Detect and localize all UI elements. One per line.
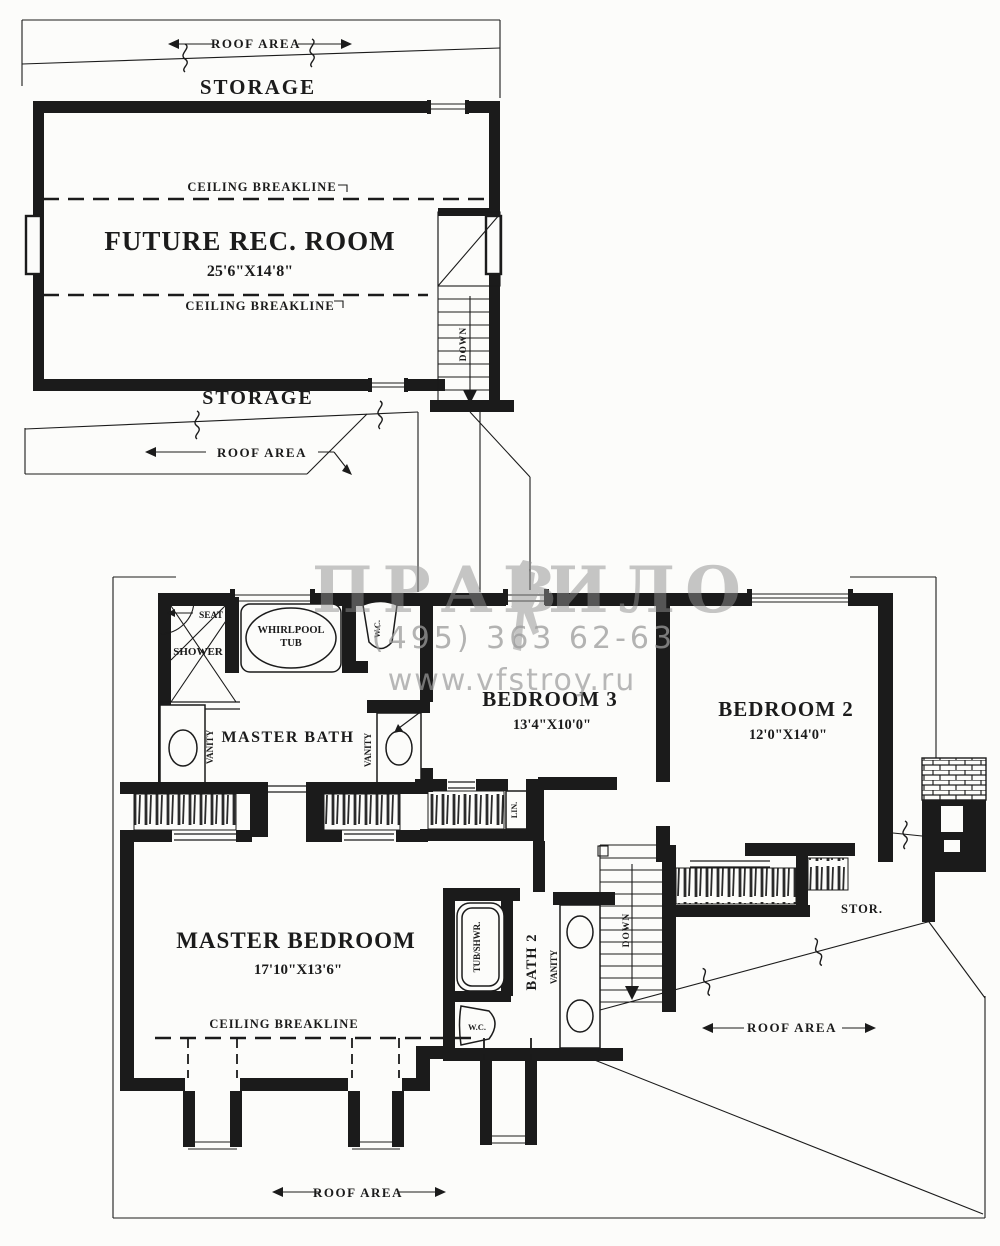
upper-roof-edge-bottom xyxy=(25,412,418,429)
master-bath-label: MASTER BATH xyxy=(221,729,354,746)
bedroom2-closet-door xyxy=(690,861,770,867)
closet-wall xyxy=(236,830,252,842)
master-closet-1 xyxy=(134,794,236,830)
closet-wall xyxy=(250,782,268,837)
upper-breakline-1-text: CEILING BREAKLINE xyxy=(187,180,336,194)
hall-wall-jog xyxy=(533,841,545,892)
dormer-2 xyxy=(348,1091,404,1149)
chimney xyxy=(922,758,986,922)
lower-roof-area-bottom-label: ROOF AREA xyxy=(313,1185,403,1200)
closet-1-door xyxy=(174,834,236,840)
bedroom2-right-wall xyxy=(878,593,893,862)
upper-room-label: FUTURE REC. ROOM xyxy=(104,226,395,256)
vanity-right: VANITY xyxy=(363,713,421,783)
floor-plan-page: ROOF AREA STORAGE CEILING BREAKLINE CEIL… xyxy=(0,0,1000,1246)
seat-label: SEAT xyxy=(199,611,224,621)
tub-alcove-foot xyxy=(342,661,368,673)
bath2-vanity-label: VANITY xyxy=(549,949,559,984)
upper-room-dims: 25'6"X14'8" xyxy=(207,263,293,280)
closet-wall xyxy=(306,782,324,837)
closet-wall xyxy=(324,782,428,794)
lower-stairs-down-label: DOWN xyxy=(622,913,632,948)
bedroom2-dims: 12'0"X14'0" xyxy=(749,727,827,743)
dormer-1 xyxy=(183,1091,242,1149)
upper-right-window xyxy=(486,216,501,274)
wall xyxy=(428,1046,445,1059)
tub-window xyxy=(230,589,315,605)
hall-closet-door xyxy=(448,782,475,788)
watermark-phone: (495) 363 62-63 xyxy=(372,621,676,656)
hall-closet-wall xyxy=(415,779,447,791)
wc-nook-wall xyxy=(367,700,430,713)
upper-storage-bottom-label: STORAGE xyxy=(202,387,313,409)
hall-closet-wall xyxy=(476,779,508,791)
master-bath-passage-door xyxy=(268,786,306,792)
wall xyxy=(455,991,511,1002)
closet-wall xyxy=(306,830,342,842)
bedroom2-label: BEDROOM 2 xyxy=(718,697,854,721)
hall-closet xyxy=(428,791,504,829)
break-symbol xyxy=(903,821,907,849)
seat-callout: SEAT xyxy=(167,609,224,621)
bedroom2-window xyxy=(747,589,853,605)
floor-plan-drawing: ROOF AREA STORAGE CEILING BREAKLINE CEIL… xyxy=(0,0,1000,1246)
hall-closet-wall xyxy=(420,829,526,841)
linen-closet: LIN. xyxy=(506,791,528,829)
break-symbol xyxy=(310,39,314,67)
lower-roof-area-right-label: ROOF AREA xyxy=(747,1020,837,1035)
vanity-left: VANITY xyxy=(160,705,215,787)
shower-label: SHOWER xyxy=(173,646,224,658)
upper-top-wall xyxy=(33,101,493,113)
wall xyxy=(240,1078,348,1091)
lower-stairs: DOWN xyxy=(598,845,676,1012)
master-left-wall xyxy=(120,830,134,1091)
master-bedroom-label: MASTER BEDROOM xyxy=(176,928,416,953)
wall-step xyxy=(416,1046,430,1091)
tub-shwr-label: TUB/SHWR. xyxy=(472,922,482,973)
upper-breakline-1-label: CEILING BREAKLINE xyxy=(187,180,347,194)
upper-roof-area-bottom-label: ROOF AREA xyxy=(217,445,307,460)
lower-roof-area-bottom-callout: ROOF AREA xyxy=(272,1185,446,1200)
tub-alcove-left-wall xyxy=(225,597,239,673)
closet-wall xyxy=(120,782,250,794)
dormer-3 xyxy=(480,1061,537,1145)
break-symbol xyxy=(378,401,382,429)
upper-stairs-down-label: DOWN xyxy=(459,327,469,362)
bedroom2-bottom-wall xyxy=(745,843,855,856)
wc-bath2-label: W.C. xyxy=(468,1022,486,1032)
wall xyxy=(402,1078,418,1091)
upper-bottom-window xyxy=(368,378,408,392)
lower-roof-area-right-callout: ROOF AREA xyxy=(702,1020,876,1035)
lower-breakline-label: CEILING BREAKLINE xyxy=(209,1017,358,1031)
whirlpool-label-2: TUB xyxy=(280,638,302,649)
tub-top-wall xyxy=(443,888,520,901)
watermark-url: www.vfstroy.ru xyxy=(388,663,637,698)
watermark-logo-right: ИЛО xyxy=(548,553,751,628)
bedroom3-dims: 13'4"X10'0" xyxy=(513,717,591,733)
upper-breakline-2-label: CEILING BREAKLINE xyxy=(185,299,343,313)
stor-label: STOR. xyxy=(841,902,883,916)
linen-label: LIN. xyxy=(510,802,519,818)
upper-storage-top-label: STORAGE xyxy=(200,75,316,99)
bath2-label: BATH 2 xyxy=(524,934,540,991)
wall xyxy=(133,1078,185,1091)
upper-breakline-2-text: CEILING BREAKLINE xyxy=(185,299,334,313)
bedroom3-bottom-wall xyxy=(538,777,617,790)
chimney-tie-line xyxy=(893,833,922,836)
upper-top-window xyxy=(427,100,469,114)
closet-bottom-wall xyxy=(662,905,810,917)
bedroom2-closet-2 xyxy=(808,858,848,890)
bath2-bottom-wall xyxy=(443,1048,623,1061)
upper-left-window xyxy=(26,216,41,274)
master-bedroom-dims: 17'10"X13'6" xyxy=(254,962,342,978)
break-symbol xyxy=(195,411,199,439)
tub-shower: TUB/SHWR. xyxy=(457,903,504,991)
upper-roof-area-top-callout: ROOF AREA xyxy=(168,36,352,51)
upper-outline-bottom xyxy=(25,414,367,474)
bath2-top-wall xyxy=(553,892,615,905)
upper-plan: ROOF AREA STORAGE CEILING BREAKLINE CEIL… xyxy=(22,20,514,475)
lower-roof-hips xyxy=(592,920,985,1214)
bedroom2-closet xyxy=(676,868,796,904)
master-closet-2 xyxy=(324,794,400,830)
upper-roof-area-top-label: ROOF AREA xyxy=(211,36,301,51)
vanity-left-label: VANITY xyxy=(205,729,215,764)
closet-2-door xyxy=(344,834,394,840)
vanity-right-label: VANITY xyxy=(363,732,373,767)
bath2-vanity: VANITY xyxy=(549,905,600,1048)
